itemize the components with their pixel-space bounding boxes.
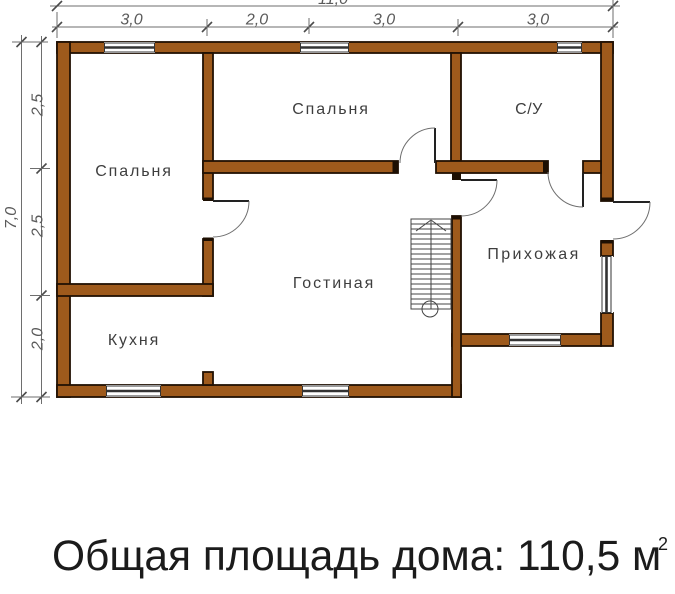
svg-text:2,0: 2,0: [30, 328, 47, 351]
svg-text:Прихожая: Прихожая: [487, 246, 580, 263]
svg-text:Гостиная: Гостиная: [293, 275, 375, 292]
svg-text:11,0: 11,0: [318, 0, 348, 8]
svg-text:Общая площадь дома: 110,5 м: Общая площадь дома: 110,5 м: [52, 533, 661, 580]
svg-text:2: 2: [658, 534, 668, 554]
svg-text:3,0: 3,0: [373, 12, 395, 29]
svg-text:Спальня: Спальня: [95, 163, 173, 180]
svg-text:2,5: 2,5: [30, 94, 47, 117]
svg-text:3,0: 3,0: [527, 12, 549, 29]
svg-text:Спальня: Спальня: [292, 101, 370, 118]
svg-text:2,0: 2,0: [245, 12, 268, 29]
svg-text:Кухня: Кухня: [108, 332, 160, 349]
svg-text:3,0: 3,0: [120, 12, 142, 29]
svg-text:7,0: 7,0: [3, 207, 20, 229]
svg-text:С/У: С/У: [515, 101, 543, 118]
svg-text:2,5: 2,5: [30, 215, 47, 238]
